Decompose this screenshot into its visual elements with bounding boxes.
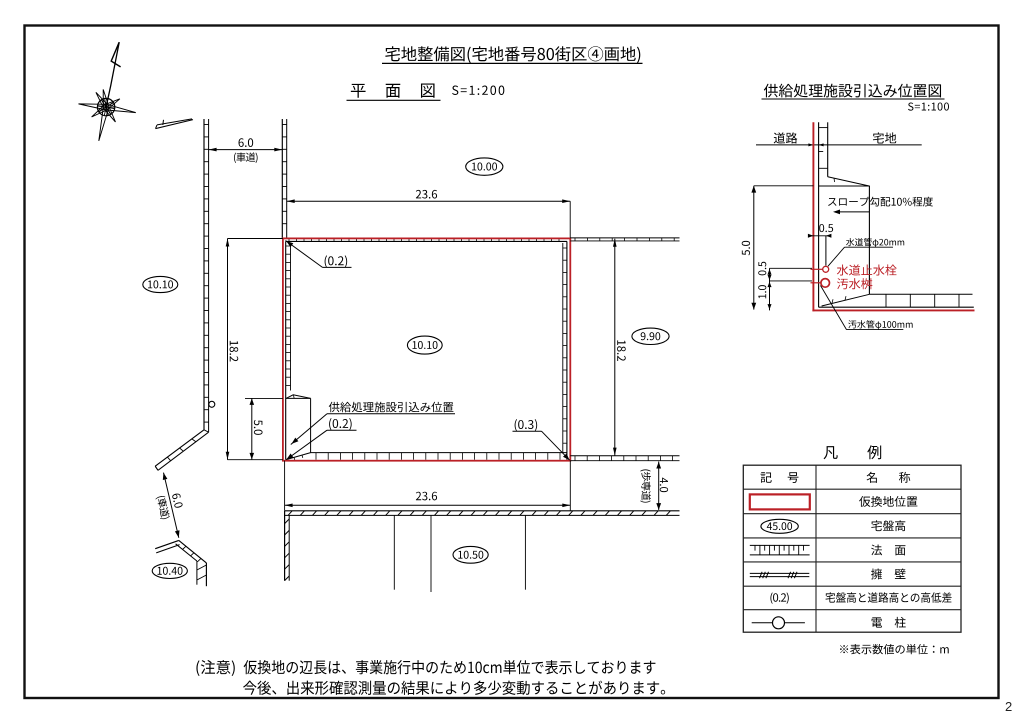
svg-text:2: 2 (1005, 699, 1012, 714)
